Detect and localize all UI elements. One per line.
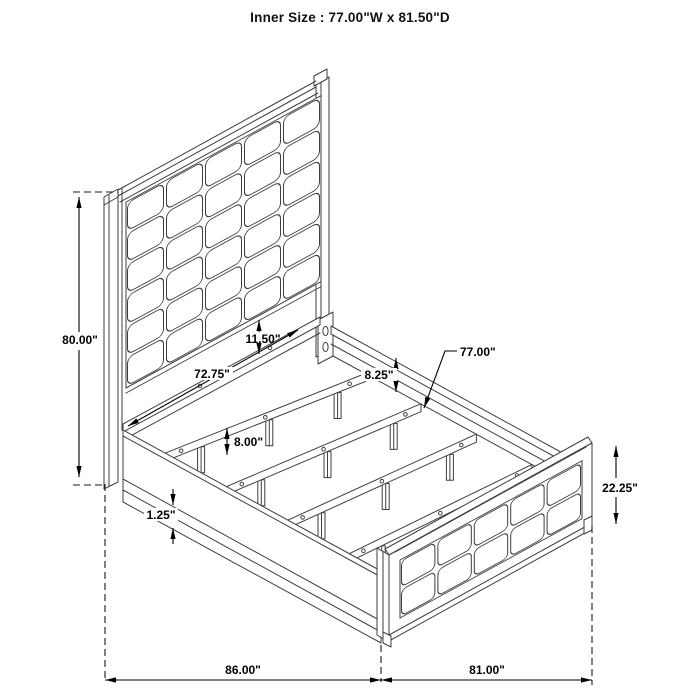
slat-bolt-hole	[362, 549, 366, 553]
dim-headboard-height: 80.00"	[62, 333, 98, 347]
slat-bolt-hole	[439, 511, 443, 515]
dim-footboard-height: 22.25"	[602, 481, 638, 495]
slat-bolt-hole	[301, 516, 305, 520]
bracket-hole	[323, 342, 328, 351]
slat-bolt-hole	[240, 482, 244, 486]
headboard-left-post	[104, 189, 118, 489]
bed-dimension-diagram: Inner Size : 77.00"W x 81.50"D	[0, 0, 700, 700]
dim-panel-gap: 11.50"	[245, 332, 280, 346]
dim-rail-to-slat: 8.25"	[364, 368, 393, 382]
slat-bolt-hole	[404, 413, 408, 417]
headboard	[104, 69, 333, 489]
slat-bolt-hole	[179, 449, 183, 453]
slat-bolt-hole	[264, 416, 268, 420]
bed-line-drawing: 80.00" 11.50" 72.75" 8.25" 77.00" 8.00" …	[0, 0, 700, 700]
slat-bolt-hole	[460, 443, 464, 447]
dim-post-inner-width: 72.75"	[194, 367, 230, 381]
dim-slat-length: 77.00"	[460, 345, 496, 359]
dim-overall-width: 81.00"	[469, 663, 505, 677]
dim-rail-lip: 1.25"	[146, 508, 175, 522]
slat-bolt-hole	[348, 382, 352, 386]
slat-bolt-hole	[380, 479, 384, 483]
bracket-hole	[323, 326, 328, 335]
dim-leg-height: 8.00"	[234, 435, 263, 449]
front-side-rail	[123, 430, 381, 643]
slat-bolt-hole	[322, 447, 326, 451]
dim-overall-length: 86.00"	[225, 663, 261, 677]
